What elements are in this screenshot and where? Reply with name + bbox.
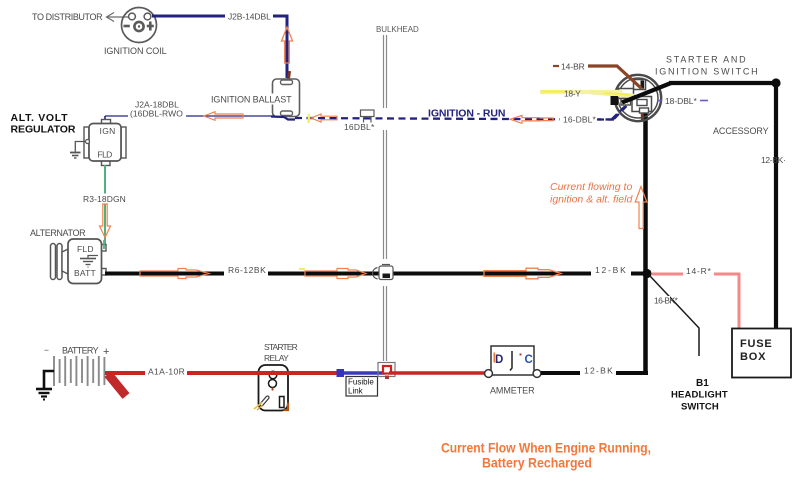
svg-text:TO DISTRIBUTOR: TO DISTRIBUTOR — [32, 12, 103, 22]
svg-text:16DBL*: 16DBL* — [344, 122, 375, 132]
svg-text:AMMETER: AMMETER — [490, 386, 535, 396]
svg-text:R6-12BK: R6-12BK — [228, 265, 266, 275]
svg-text:FLD: FLD — [77, 244, 94, 254]
svg-text:ACCESSORY: ACCESSORY — [713, 126, 769, 136]
svg-text:18-DBL*: 18-DBL* — [665, 96, 697, 106]
svg-text:Current flowing to: Current flowing to — [550, 181, 632, 193]
svg-text:14-BR: 14-BR — [561, 62, 585, 72]
svg-text:(16DBL-RWO: (16DBL-RWO — [130, 109, 183, 119]
svg-text:ignition & alt. field: ignition & alt. field — [550, 194, 633, 206]
svg-text:BULKHEAD: BULKHEAD — [376, 25, 419, 34]
svg-text:SWITCH: SWITCH — [681, 402, 719, 413]
svg-text:J2B-14DBL: J2B-14DBL — [228, 12, 271, 22]
svg-text:IGNITION COIL: IGNITION COIL — [104, 46, 167, 56]
svg-text:Link: Link — [348, 387, 364, 396]
svg-text:STARTER: STARTER — [264, 342, 298, 352]
svg-text:A1A-10R: A1A-10R — [148, 367, 185, 377]
svg-text:FLD: FLD — [98, 150, 113, 160]
svg-text:BOX: BOX — [740, 351, 766, 363]
svg-text:IGN: IGN — [100, 126, 116, 136]
svg-text:BATT: BATT — [74, 268, 96, 278]
svg-text:−: − — [44, 345, 49, 355]
svg-text:FUSE: FUSE — [740, 338, 773, 350]
svg-text:HEADLIGHT: HEADLIGHT — [671, 390, 728, 401]
svg-text:BATTERY: BATTERY — [62, 346, 99, 356]
svg-text:16-BK*: 16-BK* — [654, 296, 678, 306]
svg-text:RELAY: RELAY — [264, 353, 289, 363]
svg-text:14-R*: 14-R* — [686, 266, 711, 276]
svg-text:Fusible: Fusible — [348, 378, 374, 387]
svg-text:STARTER AND: STARTER AND — [666, 55, 746, 65]
svg-text:Current Flow When Engine Runni: Current Flow When Engine Running, — [441, 440, 651, 456]
svg-text:B1: B1 — [696, 378, 709, 389]
svg-text:IGNITION BALLAST: IGNITION BALLAST — [211, 95, 292, 105]
svg-text:C: C — [525, 354, 533, 366]
svg-text:ALTERNATOR: ALTERNATOR — [30, 228, 86, 238]
svg-text:+: + — [103, 346, 109, 358]
svg-text:18-Y: 18-Y — [564, 89, 581, 99]
svg-text:12-BK: 12-BK — [595, 265, 626, 275]
svg-text:R3-18DGN: R3-18DGN — [83, 194, 126, 204]
svg-text:16-DBL*: 16-DBL* — [563, 115, 596, 125]
svg-text:IGNITION SWITCH: IGNITION SWITCH — [655, 67, 758, 77]
svg-text:12-BK·: 12-BK· — [761, 155, 786, 165]
svg-text:ALT. VOLT: ALT. VOLT — [11, 112, 69, 124]
svg-text:IGNITION - RUN: IGNITION - RUN — [428, 108, 506, 120]
svg-text:REGULATOR: REGULATOR — [11, 124, 76, 136]
svg-text:12-BK: 12-BK — [584, 366, 613, 376]
svg-text:D: D — [495, 354, 503, 366]
svg-text:Battery Recharged: Battery Recharged — [482, 455, 592, 471]
